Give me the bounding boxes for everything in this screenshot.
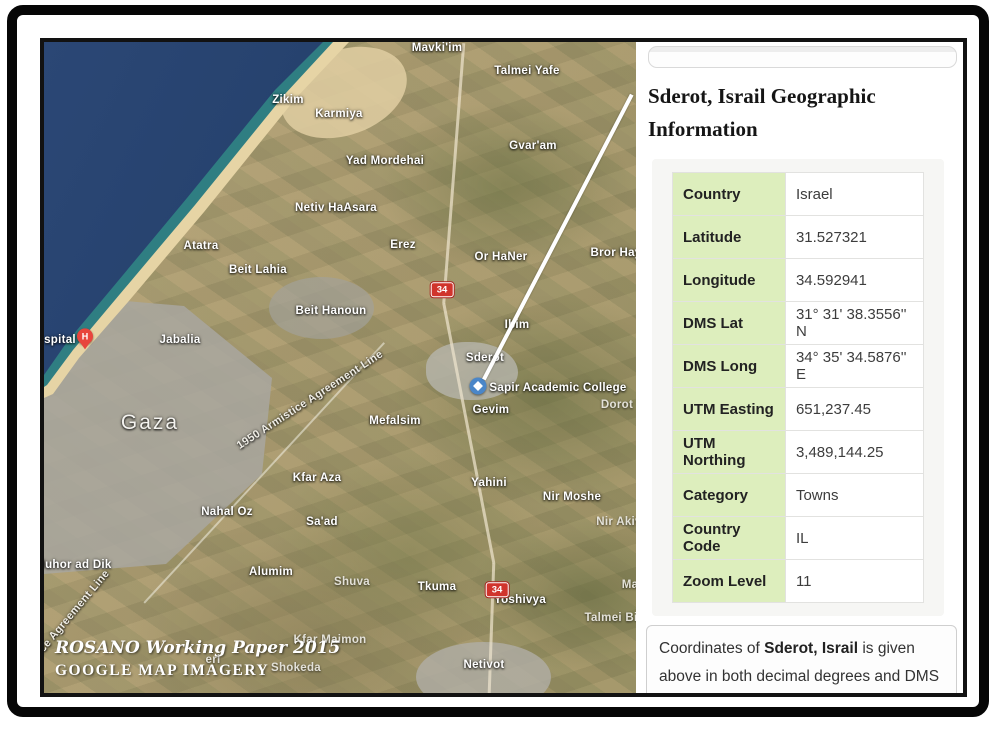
- road-shield-34-1: 34: [431, 282, 454, 297]
- row-value: Israel: [785, 173, 923, 216]
- table-row-category: CategoryTowns: [673, 474, 924, 517]
- table-row-utm-northing: UTM Northing3,489,144.25: [673, 431, 924, 474]
- table-row-dms-long: DMS Long34° 35' 34.5876'' E: [673, 345, 924, 388]
- table-row-country: CountryIsrael: [673, 173, 924, 216]
- road-shield-34-2: 34: [486, 582, 509, 597]
- geo-table-card: CountryIsraelLatitude31.527321Longitude3…: [652, 159, 944, 616]
- map-label-gaza: Gaza: [121, 411, 179, 435]
- row-label: DMS Lat: [673, 302, 786, 345]
- map-label-bror-hay: Bror Hay: [591, 247, 636, 259]
- map-label-nir-moshe: Nir Moshe: [543, 491, 601, 503]
- geo-info-table: CountryIsraelLatitude31.527321Longitude3…: [672, 172, 924, 603]
- map-label-karmiya: Karmiya: [315, 108, 363, 120]
- map-label-alumim: Alumim: [249, 566, 293, 578]
- description-place-name: Sderot, Israil: [764, 640, 858, 657]
- map-label-shuva: Shuva: [334, 576, 370, 588]
- page-title: Sderot, Israil Geographic Information: [648, 80, 920, 146]
- row-label: Longitude: [673, 259, 786, 302]
- watermark-author: ROSANO Working Paper 2015: [55, 638, 340, 658]
- map-label-juhor-ad-dik: Juhor ad Dik: [44, 559, 112, 571]
- row-value: 11: [785, 560, 923, 603]
- map-label-beit-lahia: Beit Lahia: [229, 264, 287, 276]
- map-label-nahal-oz: Nahal Oz: [201, 506, 253, 518]
- map-label-kfar-aza: Kfar Aza: [293, 472, 342, 484]
- table-row-dms-lat: DMS Lat31° 31' 38.3556'' N: [673, 302, 924, 345]
- row-label: Country: [673, 173, 786, 216]
- map-label-yahini: Yahini: [471, 477, 507, 489]
- table-row-utm-easting: UTM Easting651,237.45: [673, 388, 924, 431]
- map-label-zikim: Zikim: [272, 94, 304, 106]
- row-label: UTM Northing: [673, 431, 786, 474]
- map-label-sa-ad: Sa'ad: [306, 516, 338, 528]
- map-label-dorot: Dorot: [601, 399, 633, 411]
- table-row-zoom-level: Zoom Level11: [673, 560, 924, 603]
- row-label: DMS Long: [673, 345, 786, 388]
- map-label-or-haner: Or HaNer: [475, 251, 528, 263]
- row-value: 34.592941: [785, 259, 923, 302]
- row-label: Latitude: [673, 216, 786, 259]
- search-input[interactable]: [648, 46, 957, 68]
- map-label-gvar-am: Gvar'am: [509, 140, 557, 152]
- map-label-talmei-yafe: Talmei Yafe: [494, 65, 560, 77]
- row-value: 31.527321: [785, 216, 923, 259]
- map-label-sapir-academic-college: Sapir Academic College: [489, 382, 626, 394]
- row-value: 34° 35' 34.5876'' E: [785, 345, 923, 388]
- row-value: IL: [785, 517, 923, 560]
- table-row-latitude: Latitude31.527321: [673, 216, 924, 259]
- row-value: 31° 31' 38.3556'' N: [785, 302, 923, 345]
- map-label-nir-akiv: Nir Akiv: [596, 516, 636, 528]
- map-label-mefalsim: Mefalsim: [369, 415, 421, 427]
- row-label: Category: [673, 474, 786, 517]
- map-label-beit-hanoun: Beit Hanoun: [295, 305, 366, 317]
- watermark-source: GOOGLE MAP IMAGERY: [55, 662, 269, 680]
- row-label: Country Code: [673, 517, 786, 560]
- map-label-yad-mordehai: Yad Mordehai: [346, 155, 424, 167]
- map-label-netivot: Netivot: [463, 659, 504, 671]
- map-label-jabalia: Jabalia: [159, 334, 200, 346]
- map-label-spital: spital: [44, 334, 76, 346]
- row-value: 3,489,144.25: [785, 431, 923, 474]
- hospital-pin-icon: H: [77, 328, 93, 344]
- content-area: Mavki'imTalmei YafeZikimKarmiyaGvar'amYa…: [40, 38, 967, 697]
- map-label-shokeda: Shokeda: [271, 662, 321, 674]
- map-label-gevim: Gevim: [473, 404, 510, 416]
- info-panel: Sderot, Israil Geographic Information Co…: [636, 42, 963, 693]
- satellite-map[interactable]: Mavki'imTalmei YafeZikimKarmiyaGvar'amYa…: [44, 42, 636, 693]
- map-label-tkuma: Tkuma: [418, 581, 457, 593]
- map-label-netiv-haasara: Netiv HaAsara: [295, 202, 377, 214]
- table-row-longitude: Longitude34.592941: [673, 259, 924, 302]
- row-value: Towns: [785, 474, 923, 517]
- row-label: Zoom Level: [673, 560, 786, 603]
- page: Mavki'imTalmei YafeZikimKarmiyaGvar'amYa…: [0, 0, 1003, 729]
- map-label-atatra: Atatra: [183, 240, 218, 252]
- row-label: UTM Easting: [673, 388, 786, 431]
- description-box: Coordinates of Sderot, Israil is given a…: [646, 625, 957, 693]
- map-label-talmei-bi: Talmei Bi: [585, 612, 636, 624]
- description-prefix: Coordinates of: [659, 640, 764, 657]
- table-row-country-code: Country CodeIL: [673, 517, 924, 560]
- row-value: 651,237.45: [785, 388, 923, 431]
- map-label-mavki-im: Mavki'im: [412, 42, 463, 54]
- geo-table-body: CountryIsraelLatitude31.527321Longitude3…: [673, 173, 924, 603]
- map-label-ma: Ma: [622, 579, 636, 591]
- map-label-erez: Erez: [390, 239, 416, 251]
